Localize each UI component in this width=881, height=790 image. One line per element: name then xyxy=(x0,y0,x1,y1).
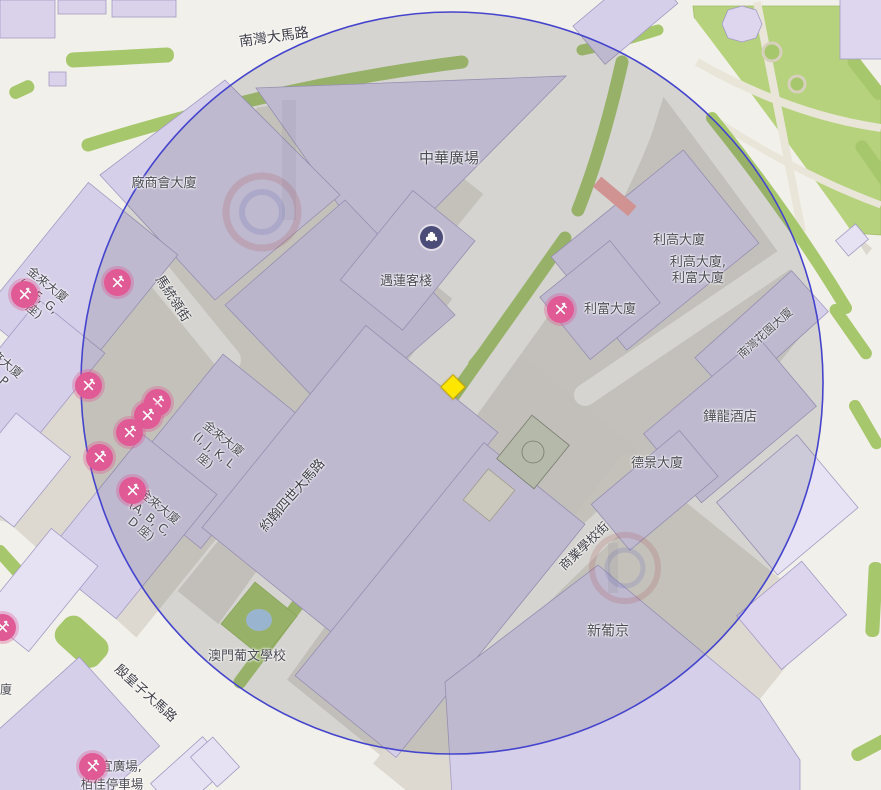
fork-knife-icon xyxy=(139,407,156,424)
basemap-svg xyxy=(0,0,881,790)
taxi-stand-marker[interactable] xyxy=(420,226,443,249)
fork-knife-icon xyxy=(124,482,141,499)
fork-knife-icon xyxy=(121,424,138,441)
fork-knife-icon xyxy=(16,286,33,303)
fork-knife-icon xyxy=(91,449,108,466)
fork-knife-icon xyxy=(0,619,11,636)
fork-knife-icon xyxy=(80,377,97,394)
restaurant-marker[interactable] xyxy=(79,753,106,780)
restaurant-marker[interactable] xyxy=(75,372,102,399)
fork-knife-icon xyxy=(552,301,569,318)
restaurant-marker[interactable] xyxy=(116,419,143,446)
restaurant-marker[interactable] xyxy=(104,269,131,296)
fork-knife-icon xyxy=(84,758,101,775)
restaurant-marker[interactable] xyxy=(86,444,113,471)
restaurant-marker[interactable] xyxy=(11,281,38,308)
map-canvas[interactable]: 南灣大馬路 馬統領街 約翰四世大馬路 商業學校街 殷皇子大馬路 中華廣場 廠商會… xyxy=(0,0,881,790)
restaurant-marker[interactable] xyxy=(119,477,146,504)
taxi-icon xyxy=(422,228,441,247)
fork-knife-icon xyxy=(109,274,126,291)
restaurant-marker[interactable] xyxy=(547,296,574,323)
